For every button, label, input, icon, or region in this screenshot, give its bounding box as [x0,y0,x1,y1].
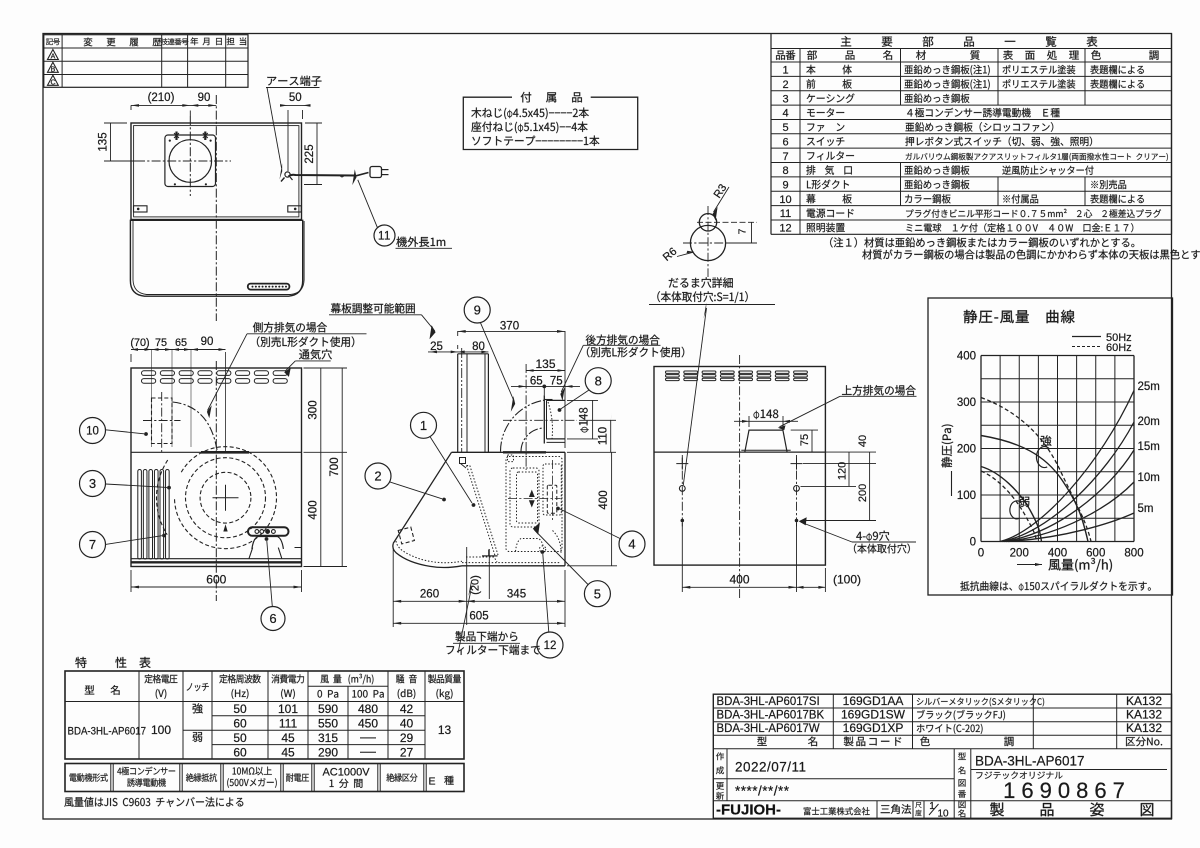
svg-text:-FUJIOH-: -FUJIOH- [716,802,781,819]
svg-text:3: 3 [782,93,788,105]
svg-text:9: 9 [474,303,481,318]
svg-text:11: 11 [780,208,791,220]
svg-text:1: 1 [420,418,427,433]
svg-text:169GD1XP: 169GD1XP [843,721,904,735]
svg-text:(20): (20) [470,575,482,595]
svg-text:E: E [428,776,435,788]
svg-text:60: 60 [233,717,247,731]
svg-text:(100): (100) [833,573,861,587]
svg-text:100: 100 [957,490,976,502]
svg-text:1: 1 [782,65,788,77]
svg-text:90: 90 [201,336,214,348]
svg-text:1: 1 [929,801,935,812]
svg-text:25: 25 [430,341,443,353]
svg-text:260: 260 [420,589,439,601]
svg-text:400: 400 [308,500,320,519]
svg-text:101: 101 [278,702,298,716]
svg-text:BDA-3HL-AP6017W: BDA-3HL-AP6017W [717,722,820,735]
svg-text:27: 27 [400,745,414,759]
svg-text:75: 75 [550,376,563,388]
svg-text:40: 40 [857,435,869,447]
svg-text:2022/07/11: 2022/07/11 [735,760,807,775]
svg-text:10m: 10m [1138,472,1160,484]
svg-text:400: 400 [729,573,749,587]
svg-text:7: 7 [782,151,788,163]
svg-text:13: 13 [438,723,452,737]
svg-text:(210): (210) [148,92,175,104]
svg-text:65: 65 [530,376,543,388]
svg-text:6: 6 [269,611,276,626]
svg-text:400: 400 [598,490,610,509]
svg-text:480: 480 [358,702,378,716]
svg-text:BDA-3HL-AP6017BK: BDA-3HL-AP6017BK [717,708,825,721]
svg-text:200: 200 [857,484,869,502]
svg-text:12: 12 [544,640,557,652]
svg-text:300: 300 [308,400,320,419]
svg-text:2: 2 [782,79,788,91]
svg-text:8: 8 [595,373,602,388]
svg-text:25m: 25m [1138,381,1160,393]
svg-text:4: 4 [782,108,788,120]
svg-text:111: 111 [279,717,298,731]
svg-text:C: C [50,79,55,86]
svg-text:10: 10 [779,194,791,206]
svg-text:0: 0 [970,537,976,549]
svg-text:4: 4 [628,537,635,552]
svg-text:590: 590 [318,702,338,716]
svg-text:50: 50 [233,731,247,745]
svg-text:80: 80 [472,341,485,353]
svg-text:3: 3 [89,476,96,491]
svg-text:400: 400 [1048,548,1067,560]
svg-text:7: 7 [737,228,749,234]
svg-text:10: 10 [937,809,949,820]
svg-text:450: 450 [358,717,378,731]
svg-text:605: 605 [469,611,488,623]
svg-text:100: 100 [151,723,171,737]
svg-text:BDA-3HL-AP6017SI: BDA-3HL-AP6017SI [717,695,820,708]
svg-text:10: 10 [86,426,99,438]
svg-text:290: 290 [318,745,338,759]
svg-text:40: 40 [400,717,414,731]
svg-text:11: 11 [378,231,391,243]
svg-text:300: 300 [957,397,976,409]
svg-text:6: 6 [782,136,788,148]
svg-text:75: 75 [155,337,167,349]
svg-text:45: 45 [281,745,295,759]
svg-text:169GD1AA: 169GD1AA [843,694,904,708]
svg-text:45: 45 [281,731,295,745]
svg-text:550: 550 [318,717,338,731]
svg-text:20m: 20m [1138,416,1160,428]
svg-text:AC1000V: AC1000V [322,767,370,779]
svg-text:200: 200 [957,444,976,456]
svg-text:169GD1SW: 169GD1SW [841,707,906,721]
svg-text:15m: 15m [1138,441,1160,453]
svg-text:B: B [51,66,56,73]
svg-text:KA132: KA132 [1126,707,1162,721]
svg-text:135: 135 [98,132,110,151]
svg-text:110: 110 [598,427,610,445]
svg-text:BDA-3HL-AP6017: BDA-3HL-AP6017 [68,726,147,738]
svg-text:225: 225 [304,144,316,163]
svg-text:****/**/**: ****/**/** [735,784,790,799]
svg-text:BDA-3HL-AP6017: BDA-3HL-AP6017 [975,754,1085,769]
svg-text:5m: 5m [1138,503,1154,515]
svg-text:42: 42 [400,702,414,716]
svg-text:90: 90 [198,92,211,104]
svg-text:KA132: KA132 [1126,694,1162,708]
svg-text:5: 5 [782,122,788,134]
svg-text:600: 600 [1086,548,1105,560]
svg-text:(70): (70) [130,337,149,349]
svg-text:370: 370 [500,321,519,333]
svg-text:KA132: KA132 [1126,721,1162,735]
svg-text:7: 7 [89,537,96,552]
svg-text:600: 600 [206,573,226,587]
svg-text:A: A [51,54,56,61]
svg-text:1690867: 1690867 [1003,778,1131,803]
svg-text:60Hz: 60Hz [1106,342,1132,354]
svg-text:29: 29 [400,731,414,745]
svg-text:200: 200 [1010,548,1029,560]
svg-text:50: 50 [233,702,247,716]
svg-text:120: 120 [837,462,849,480]
svg-text:345: 345 [507,589,526,601]
svg-text:800: 800 [1124,548,1143,560]
svg-text:9: 9 [782,179,788,191]
svg-text:135: 135 [535,357,555,371]
svg-text:50: 50 [289,92,302,104]
svg-text:12: 12 [779,223,791,235]
svg-text:60: 60 [233,745,247,759]
svg-text:2: 2 [374,469,381,484]
svg-text:400: 400 [957,351,976,363]
svg-text:5: 5 [594,586,601,601]
svg-text:0: 0 [978,548,984,560]
svg-text:65: 65 [175,337,187,349]
svg-text:75: 75 [799,434,811,446]
svg-text:8: 8 [782,165,788,177]
svg-text:315: 315 [318,731,338,745]
svg-text:700: 700 [329,457,341,476]
